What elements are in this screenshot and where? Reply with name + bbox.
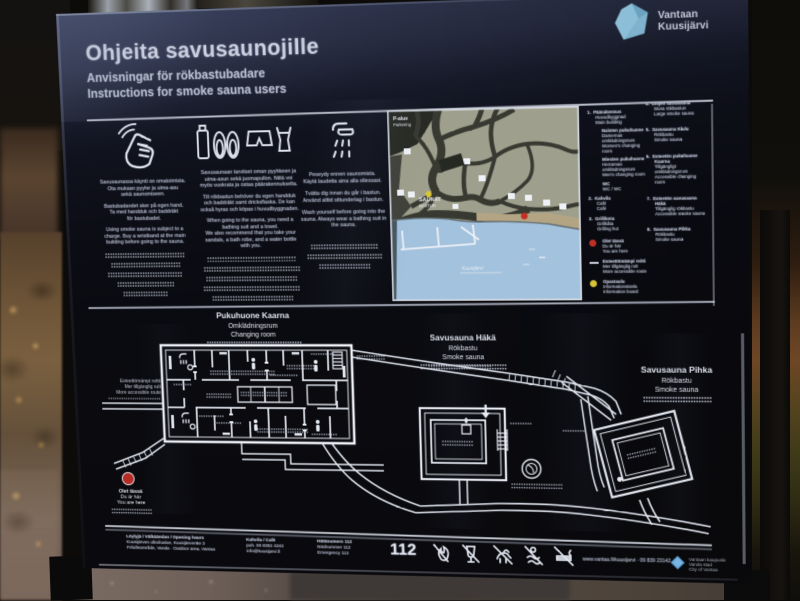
svg-text:Changing room: Changing room — [231, 332, 277, 339]
svg-text:Pukuhuone Kaarna: Pukuhuone Kaarna — [216, 311, 290, 320]
svg-text:Omklädningsrum: Omklädningsrum — [228, 323, 278, 330]
svg-text:You are here: You are here — [117, 500, 146, 506]
